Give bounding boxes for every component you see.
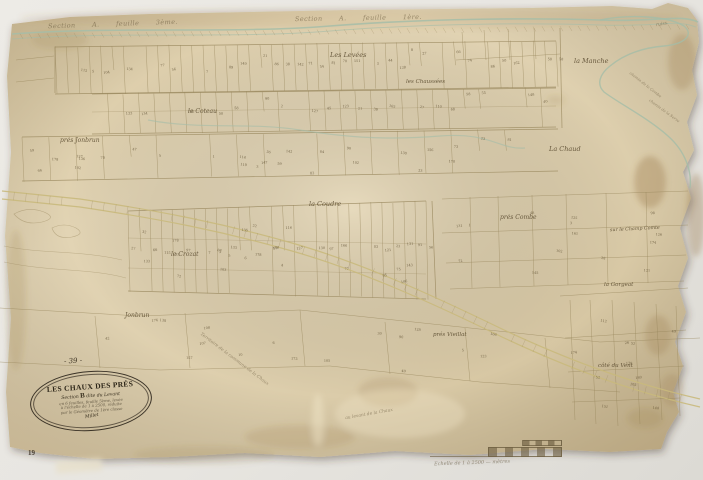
scale-bar: Echelle de 1 à 2500 — mètres bbox=[430, 440, 570, 465]
svg-text:138: 138 bbox=[159, 318, 166, 323]
svg-text:125: 125 bbox=[571, 215, 578, 220]
svg-text:85: 85 bbox=[382, 273, 387, 277]
svg-text:91: 91 bbox=[418, 243, 423, 247]
svg-text:59: 59 bbox=[29, 148, 34, 153]
svg-text:70: 70 bbox=[100, 156, 105, 160]
svg-text:137: 137 bbox=[76, 154, 83, 159]
svg-text:56: 56 bbox=[171, 67, 176, 72]
svg-text:5: 5 bbox=[159, 154, 162, 158]
svg-text:134: 134 bbox=[126, 67, 133, 71]
svg-text:121: 121 bbox=[644, 269, 651, 273]
svg-text:8: 8 bbox=[411, 48, 413, 52]
svg-text:103: 103 bbox=[220, 267, 227, 272]
svg-text:5: 5 bbox=[228, 254, 230, 258]
svg-text:27: 27 bbox=[131, 246, 136, 251]
svg-text:174: 174 bbox=[650, 240, 657, 244]
svg-text:86: 86 bbox=[490, 64, 495, 68]
svg-text:114: 114 bbox=[239, 155, 246, 160]
svg-text:49: 49 bbox=[672, 329, 676, 333]
cartouche-signature: Millet bbox=[85, 413, 99, 421]
svg-text:149: 149 bbox=[240, 62, 247, 66]
svg-text:81: 81 bbox=[331, 61, 336, 66]
svg-text:107: 107 bbox=[199, 341, 206, 346]
svg-text:138: 138 bbox=[399, 65, 406, 70]
svg-text:71: 71 bbox=[308, 61, 313, 65]
svg-text:1: 1 bbox=[213, 155, 215, 159]
svg-text:50: 50 bbox=[219, 112, 223, 116]
svg-text:23: 23 bbox=[396, 244, 401, 248]
svg-text:123: 123 bbox=[342, 104, 349, 108]
svg-text:66: 66 bbox=[456, 50, 461, 54]
svg-text:48: 48 bbox=[530, 211, 534, 215]
svg-text:116: 116 bbox=[285, 226, 292, 230]
svg-text:133: 133 bbox=[126, 111, 133, 115]
svg-text:72: 72 bbox=[177, 274, 182, 279]
svg-text:176: 176 bbox=[151, 318, 158, 323]
scale-bar-baseline bbox=[430, 456, 488, 457]
svg-text:142: 142 bbox=[286, 149, 293, 153]
svg-text:40: 40 bbox=[401, 369, 406, 373]
svg-text:131: 131 bbox=[456, 224, 463, 229]
svg-text:178: 178 bbox=[172, 238, 179, 243]
svg-text:26: 26 bbox=[625, 341, 630, 345]
svg-text:88: 88 bbox=[217, 248, 222, 252]
svg-text:121: 121 bbox=[385, 248, 392, 253]
svg-text:7: 7 bbox=[206, 70, 208, 74]
svg-text:126: 126 bbox=[656, 233, 663, 237]
svg-text:50: 50 bbox=[502, 59, 506, 63]
svg-text:54: 54 bbox=[319, 64, 324, 69]
svg-text:66: 66 bbox=[153, 248, 158, 252]
svg-text:142: 142 bbox=[297, 62, 304, 66]
svg-text:58: 58 bbox=[234, 106, 238, 110]
svg-text:93: 93 bbox=[175, 253, 179, 257]
svg-text:58: 58 bbox=[559, 57, 564, 61]
svg-text:173: 173 bbox=[291, 357, 298, 361]
svg-text:28: 28 bbox=[601, 256, 606, 261]
svg-text:21: 21 bbox=[358, 107, 362, 111]
svg-text:21: 21 bbox=[263, 54, 268, 58]
svg-text:44: 44 bbox=[388, 58, 392, 62]
svg-text:58: 58 bbox=[466, 92, 470, 96]
svg-text:161: 161 bbox=[572, 231, 579, 235]
svg-text:127: 127 bbox=[311, 109, 318, 114]
svg-text:52: 52 bbox=[596, 375, 601, 379]
svg-text:151: 151 bbox=[354, 59, 361, 63]
svg-text:83: 83 bbox=[374, 245, 378, 249]
cartouche: LES CHAUX DES PRÉS Section B dite du Lev… bbox=[28, 367, 154, 435]
svg-text:40: 40 bbox=[543, 99, 548, 104]
svg-text:70: 70 bbox=[343, 59, 347, 63]
svg-text:66: 66 bbox=[37, 168, 42, 172]
svg-text:90: 90 bbox=[265, 97, 270, 101]
svg-text:23: 23 bbox=[480, 136, 485, 141]
svg-text:5: 5 bbox=[92, 69, 94, 73]
svg-text:133: 133 bbox=[230, 245, 237, 250]
svg-text:81: 81 bbox=[507, 138, 512, 142]
svg-text:86: 86 bbox=[274, 62, 279, 66]
svg-text:84: 84 bbox=[320, 150, 325, 154]
svg-text:77: 77 bbox=[344, 267, 348, 271]
svg-text:115: 115 bbox=[164, 251, 171, 255]
svg-text:133: 133 bbox=[144, 259, 151, 263]
svg-text:174: 174 bbox=[570, 350, 577, 355]
svg-text:178: 178 bbox=[52, 157, 59, 161]
svg-text:68: 68 bbox=[450, 107, 455, 111]
svg-text:3: 3 bbox=[570, 221, 572, 225]
svg-text:77: 77 bbox=[160, 63, 165, 67]
svg-text:116: 116 bbox=[188, 109, 195, 114]
svg-text:42: 42 bbox=[105, 336, 110, 340]
svg-text:128: 128 bbox=[414, 327, 421, 332]
svg-text:27: 27 bbox=[422, 51, 427, 55]
svg-text:89: 89 bbox=[229, 65, 234, 70]
svg-text:36: 36 bbox=[266, 150, 271, 155]
svg-text:83: 83 bbox=[310, 171, 315, 175]
svg-text:23: 23 bbox=[418, 169, 423, 173]
svg-text:157: 157 bbox=[186, 356, 193, 360]
svg-text:58: 58 bbox=[548, 57, 552, 61]
svg-text:38: 38 bbox=[285, 62, 290, 66]
svg-text:145: 145 bbox=[532, 271, 539, 275]
svg-text:131: 131 bbox=[407, 242, 414, 246]
svg-text:102: 102 bbox=[352, 160, 359, 165]
svg-text:102: 102 bbox=[556, 249, 563, 254]
svg-text:7: 7 bbox=[208, 251, 210, 255]
svg-text:97: 97 bbox=[329, 247, 334, 252]
scanned-cadastral-map: 1125104134775678914921863814271548170151… bbox=[0, 0, 703, 480]
svg-text:127: 127 bbox=[296, 246, 303, 251]
svg-text:3: 3 bbox=[256, 165, 258, 169]
svg-text:56: 56 bbox=[429, 245, 433, 249]
svg-text:110: 110 bbox=[435, 104, 442, 109]
svg-text:112: 112 bbox=[81, 68, 88, 73]
svg-text:102: 102 bbox=[74, 165, 81, 170]
svg-text:97: 97 bbox=[186, 248, 190, 252]
svg-text:166: 166 bbox=[341, 243, 348, 247]
svg-text:130: 130 bbox=[319, 246, 326, 250]
svg-text:73: 73 bbox=[454, 145, 458, 149]
svg-text:27: 27 bbox=[420, 105, 425, 110]
scale-bar-upper-row bbox=[522, 440, 562, 446]
svg-text:10: 10 bbox=[238, 353, 243, 358]
svg-text:22: 22 bbox=[252, 224, 257, 229]
svg-text:74: 74 bbox=[467, 58, 472, 63]
svg-text:105: 105 bbox=[324, 359, 330, 363]
svg-text:47: 47 bbox=[132, 147, 137, 151]
svg-text:59: 59 bbox=[277, 162, 281, 166]
svg-text:75: 75 bbox=[396, 267, 400, 271]
svg-text:178: 178 bbox=[626, 361, 632, 365]
svg-text:170: 170 bbox=[448, 159, 455, 163]
svg-text:6: 6 bbox=[272, 341, 275, 345]
svg-text:144: 144 bbox=[652, 406, 659, 411]
svg-text:98: 98 bbox=[650, 211, 655, 215]
svg-text:32: 32 bbox=[142, 230, 147, 235]
svg-text:90: 90 bbox=[399, 335, 404, 339]
svg-text:45: 45 bbox=[327, 106, 332, 110]
svg-text:4: 4 bbox=[281, 263, 284, 267]
scale-bar-checker bbox=[488, 447, 562, 457]
svg-text:90: 90 bbox=[347, 146, 352, 150]
svg-text:147: 147 bbox=[261, 160, 268, 165]
svg-text:178: 178 bbox=[255, 253, 262, 257]
svg-text:156: 156 bbox=[427, 148, 434, 152]
svg-text:135: 135 bbox=[241, 228, 248, 233]
svg-text:123: 123 bbox=[480, 354, 487, 358]
svg-text:143: 143 bbox=[406, 263, 413, 267]
svg-text:55: 55 bbox=[481, 91, 486, 95]
svg-text:52: 52 bbox=[631, 341, 636, 346]
svg-text:72: 72 bbox=[458, 259, 463, 263]
svg-text:1: 1 bbox=[468, 223, 471, 227]
svg-text:39: 39 bbox=[373, 107, 378, 112]
svg-text:5: 5 bbox=[462, 348, 464, 352]
svg-text:148: 148 bbox=[528, 92, 535, 97]
svg-text:30: 30 bbox=[377, 332, 381, 336]
svg-text:6: 6 bbox=[244, 256, 246, 260]
svg-text:3: 3 bbox=[377, 62, 379, 66]
